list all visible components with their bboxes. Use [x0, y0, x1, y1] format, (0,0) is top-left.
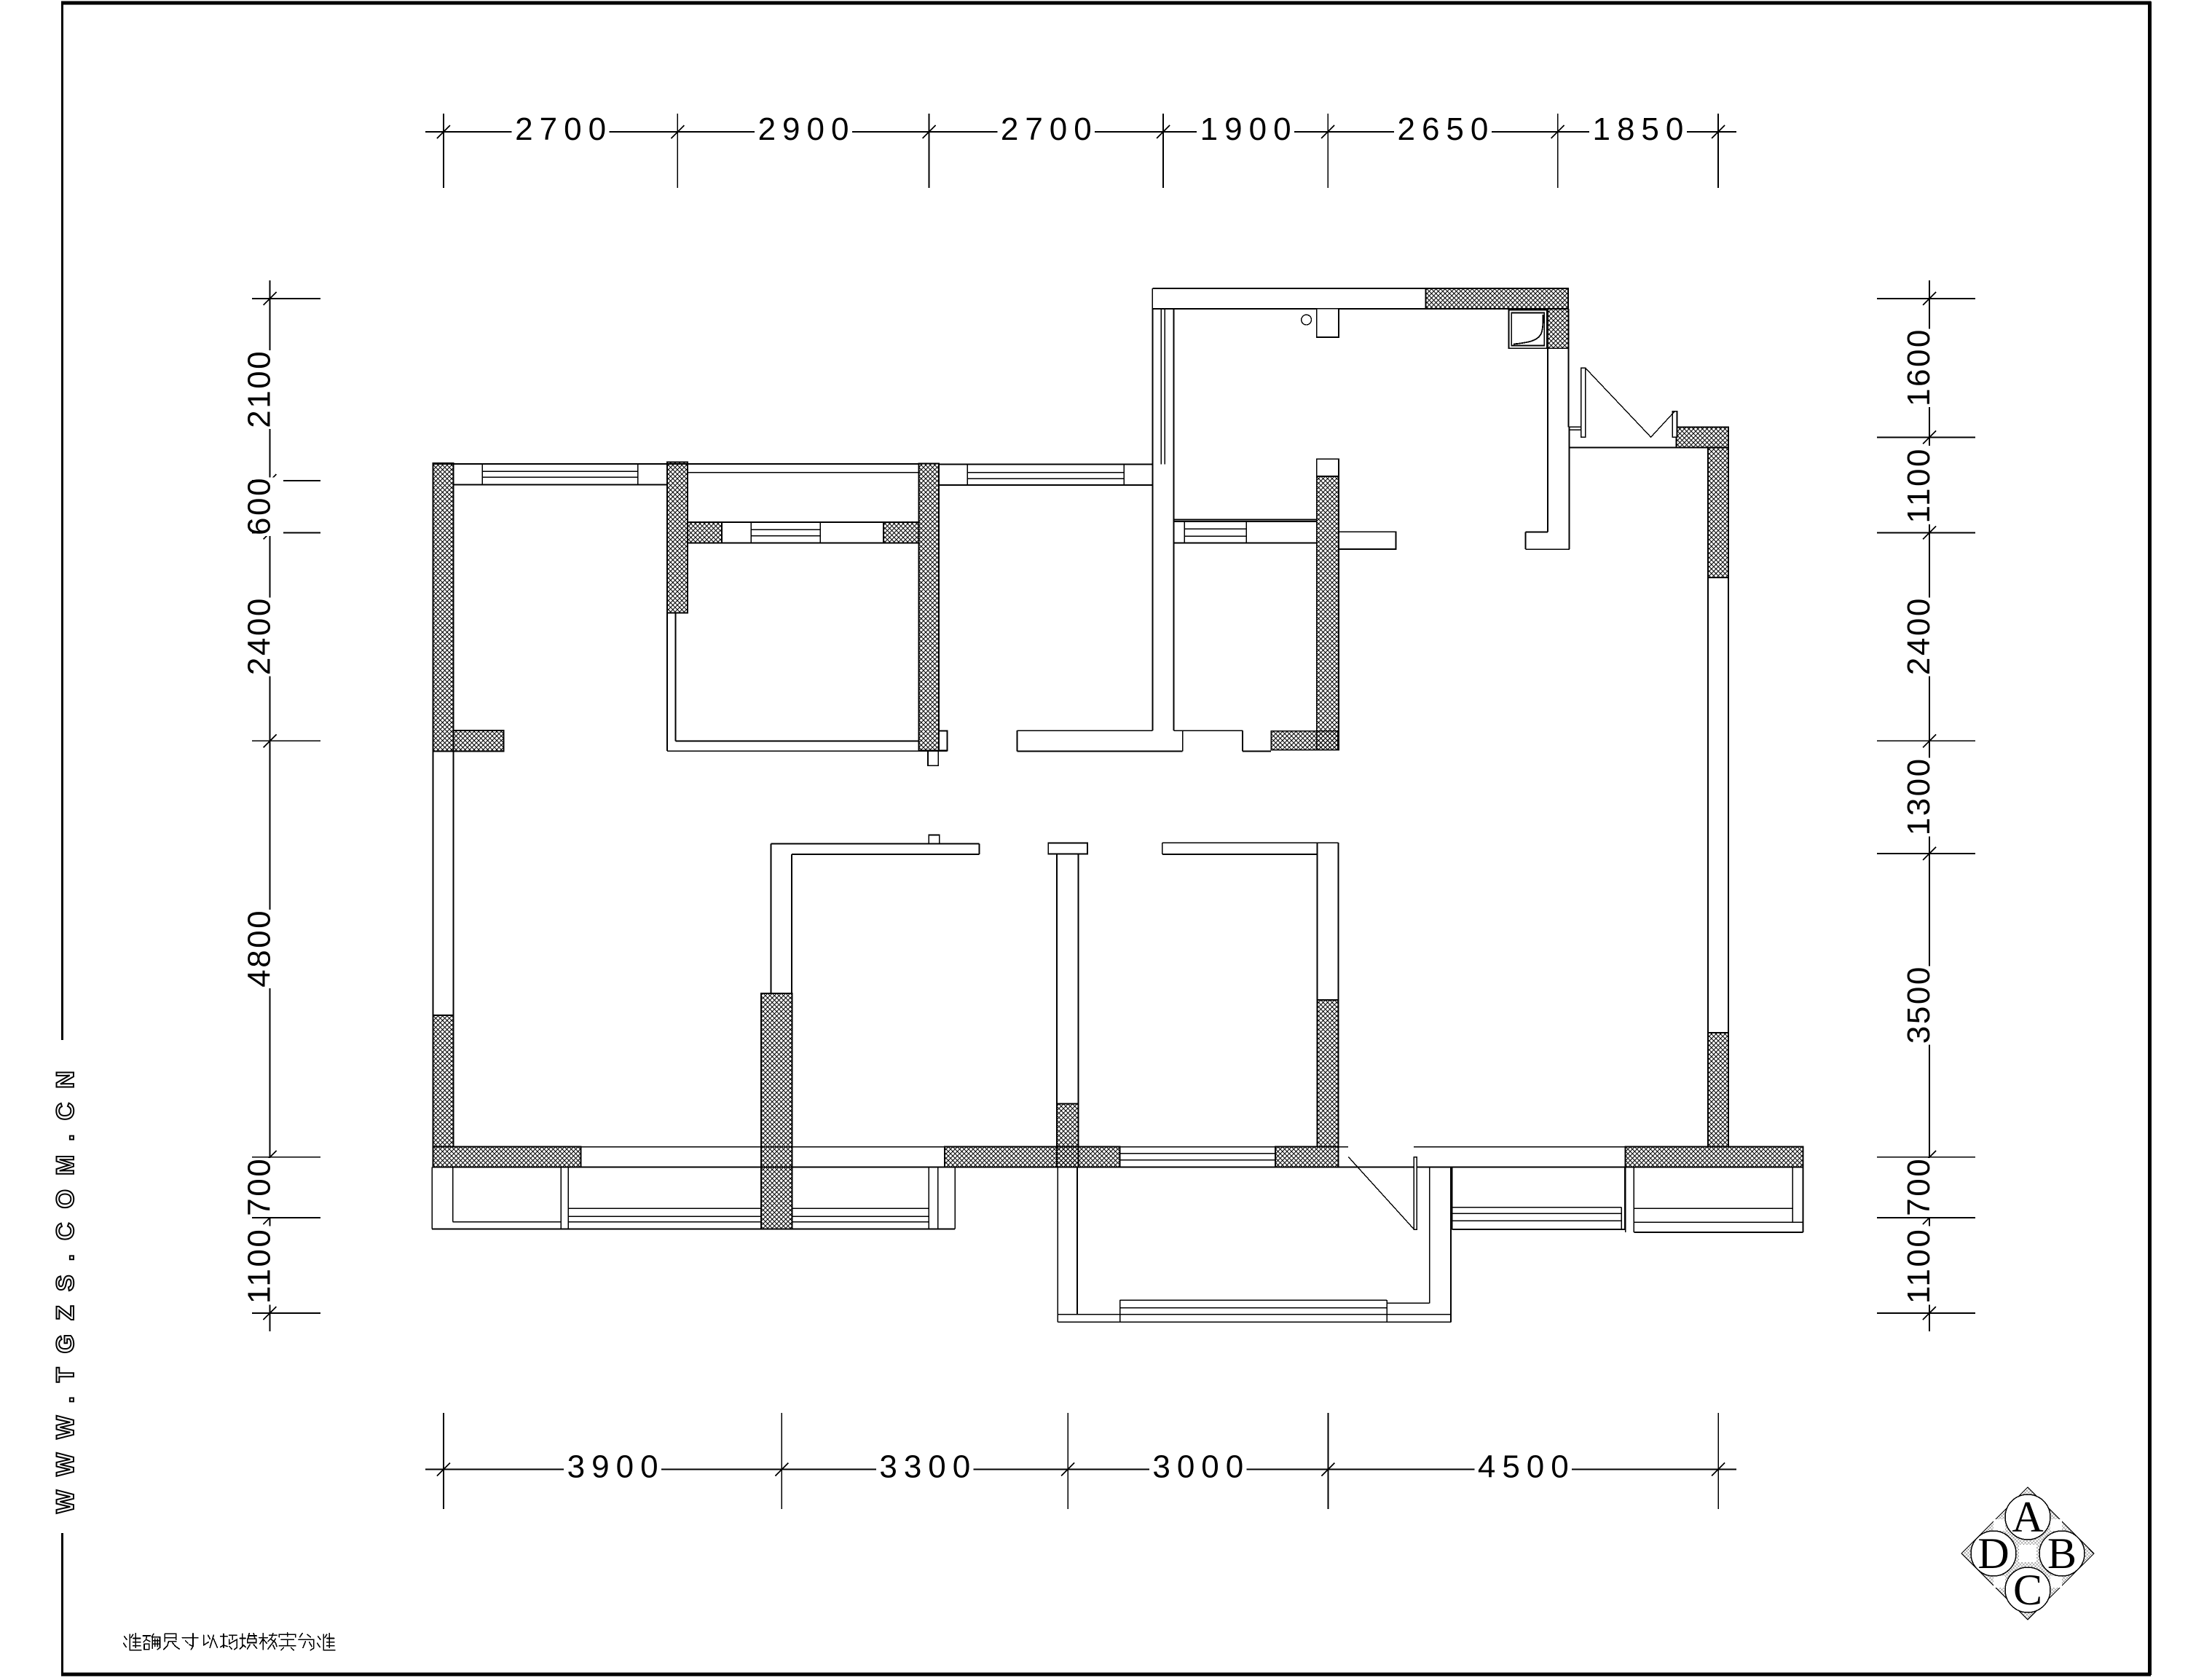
svg-text:4800: 4800 [242, 909, 278, 988]
svg-text:3000: 3000 [1152, 1449, 1250, 1485]
svg-text:1900: 1900 [1200, 111, 1298, 147]
svg-text:C: C [2013, 1566, 2042, 1614]
svg-text:2400: 2400 [242, 596, 278, 675]
svg-text:1100: 1100 [242, 1228, 278, 1304]
svg-text:2900: 2900 [758, 111, 856, 147]
svg-text:D: D [1977, 1529, 2009, 1577]
svg-text:2400: 2400 [1901, 596, 1937, 675]
svg-text:600: 600 [242, 476, 278, 535]
svg-text:A: A [2012, 1493, 2043, 1541]
svg-text:2100: 2100 [242, 350, 278, 428]
svg-text:700: 700 [1901, 1157, 1937, 1216]
svg-text:4500: 4500 [1478, 1449, 1575, 1485]
svg-text:2700: 2700 [515, 111, 613, 147]
svg-text:1100: 1100 [1901, 1228, 1937, 1304]
svg-text:1600: 1600 [1901, 328, 1937, 406]
svg-text:WWW.TGZS.COM.CN: WWW.TGZS.COM.CN [52, 1057, 79, 1513]
svg-text:700: 700 [242, 1157, 278, 1216]
svg-text:B: B [2047, 1529, 2077, 1577]
svg-text:3900: 3900 [567, 1449, 665, 1485]
svg-text:3300: 3300 [879, 1449, 977, 1485]
svg-text:2650: 2650 [1397, 111, 1495, 147]
svg-text:3500: 3500 [1901, 965, 1937, 1044]
svg-text:2700: 2700 [1001, 111, 1098, 147]
svg-text:1300: 1300 [1901, 757, 1937, 835]
svg-text:1100: 1100 [1901, 447, 1937, 524]
svg-text:1850: 1850 [1592, 111, 1690, 147]
